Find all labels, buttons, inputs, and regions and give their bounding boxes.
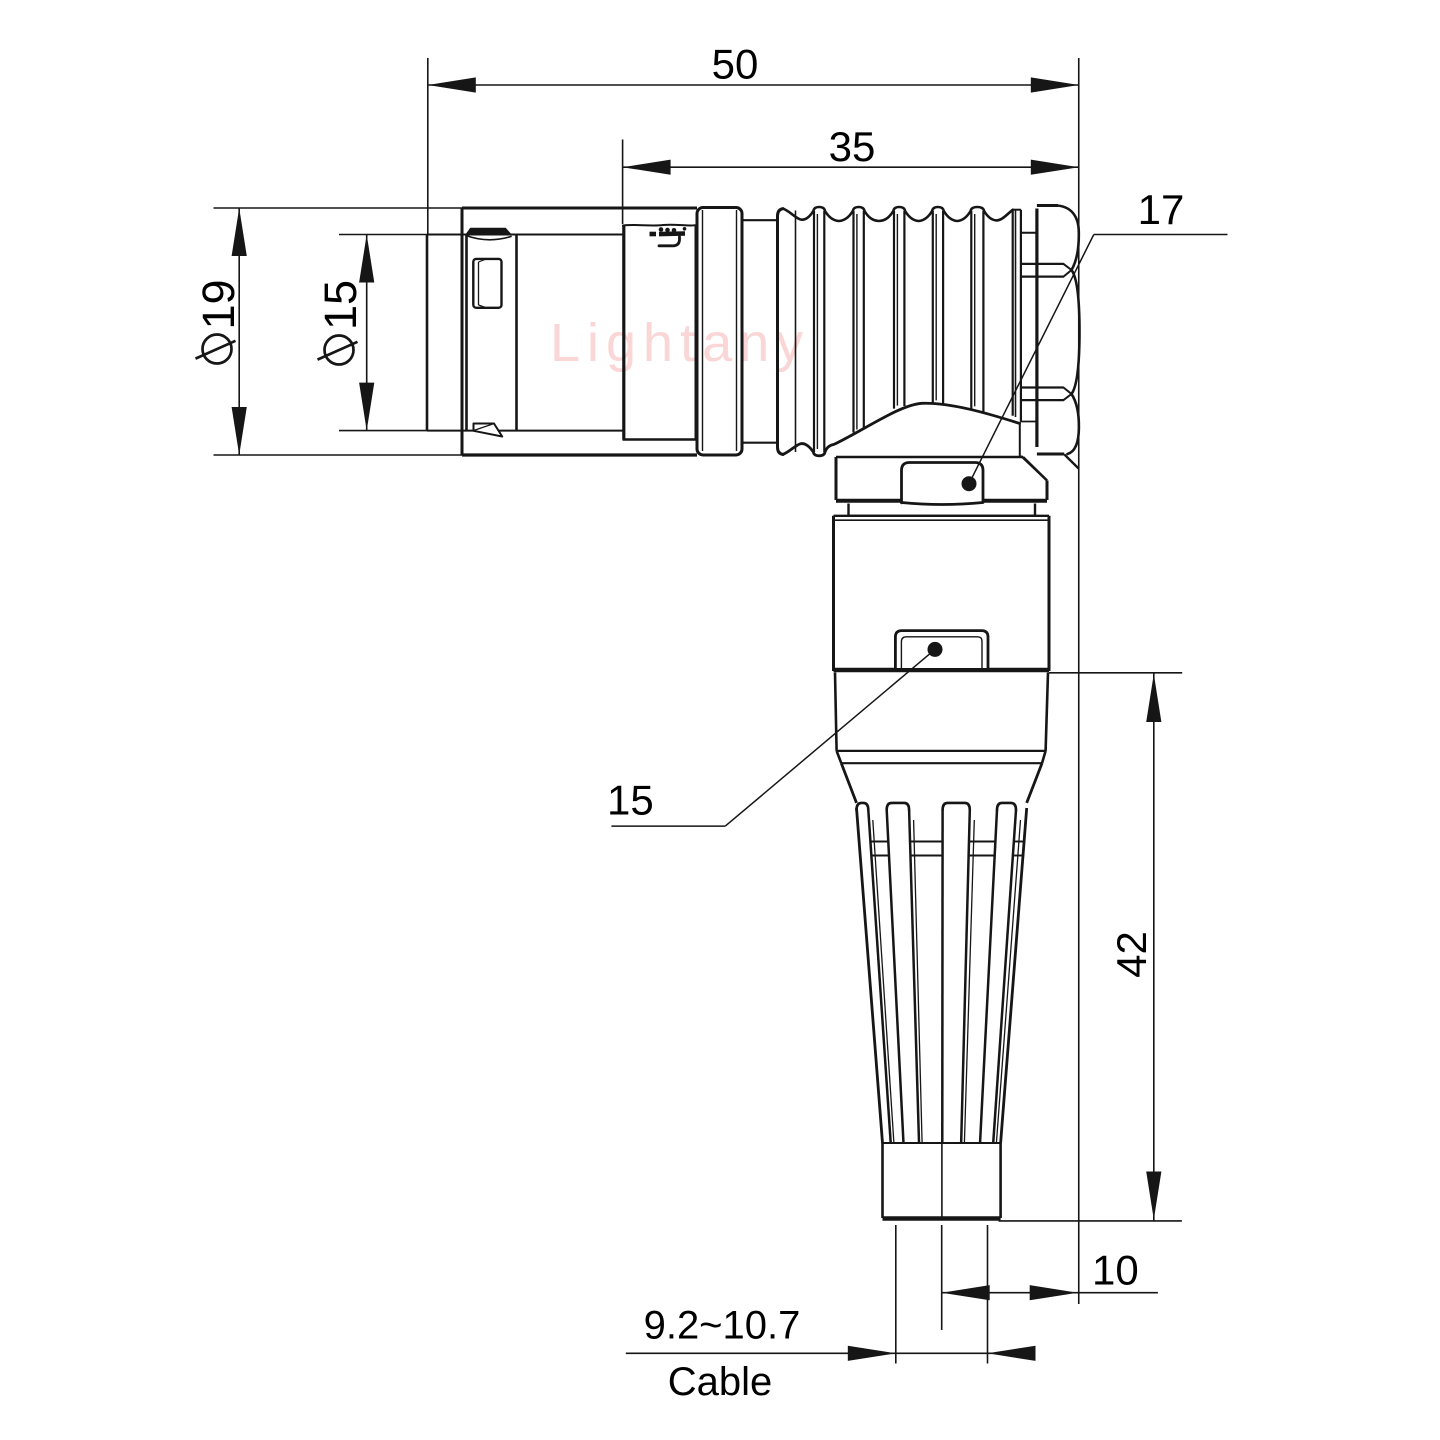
svg-text:Cable: Cable	[668, 1360, 773, 1404]
svg-text:50: 50	[712, 41, 759, 88]
svg-text:17: 17	[1138, 186, 1185, 233]
svg-text:9.2~10.7: 9.2~10.7	[644, 1304, 801, 1348]
svg-text:35: 35	[829, 123, 876, 170]
svg-text:19: 19	[193, 279, 244, 329]
svg-text:15: 15	[315, 280, 366, 330]
svg-text:42: 42	[1108, 931, 1155, 978]
svg-text:Lightany: Lightany	[550, 313, 810, 373]
svg-text:15: 15	[607, 777, 654, 824]
svg-text:10: 10	[1092, 1247, 1139, 1294]
